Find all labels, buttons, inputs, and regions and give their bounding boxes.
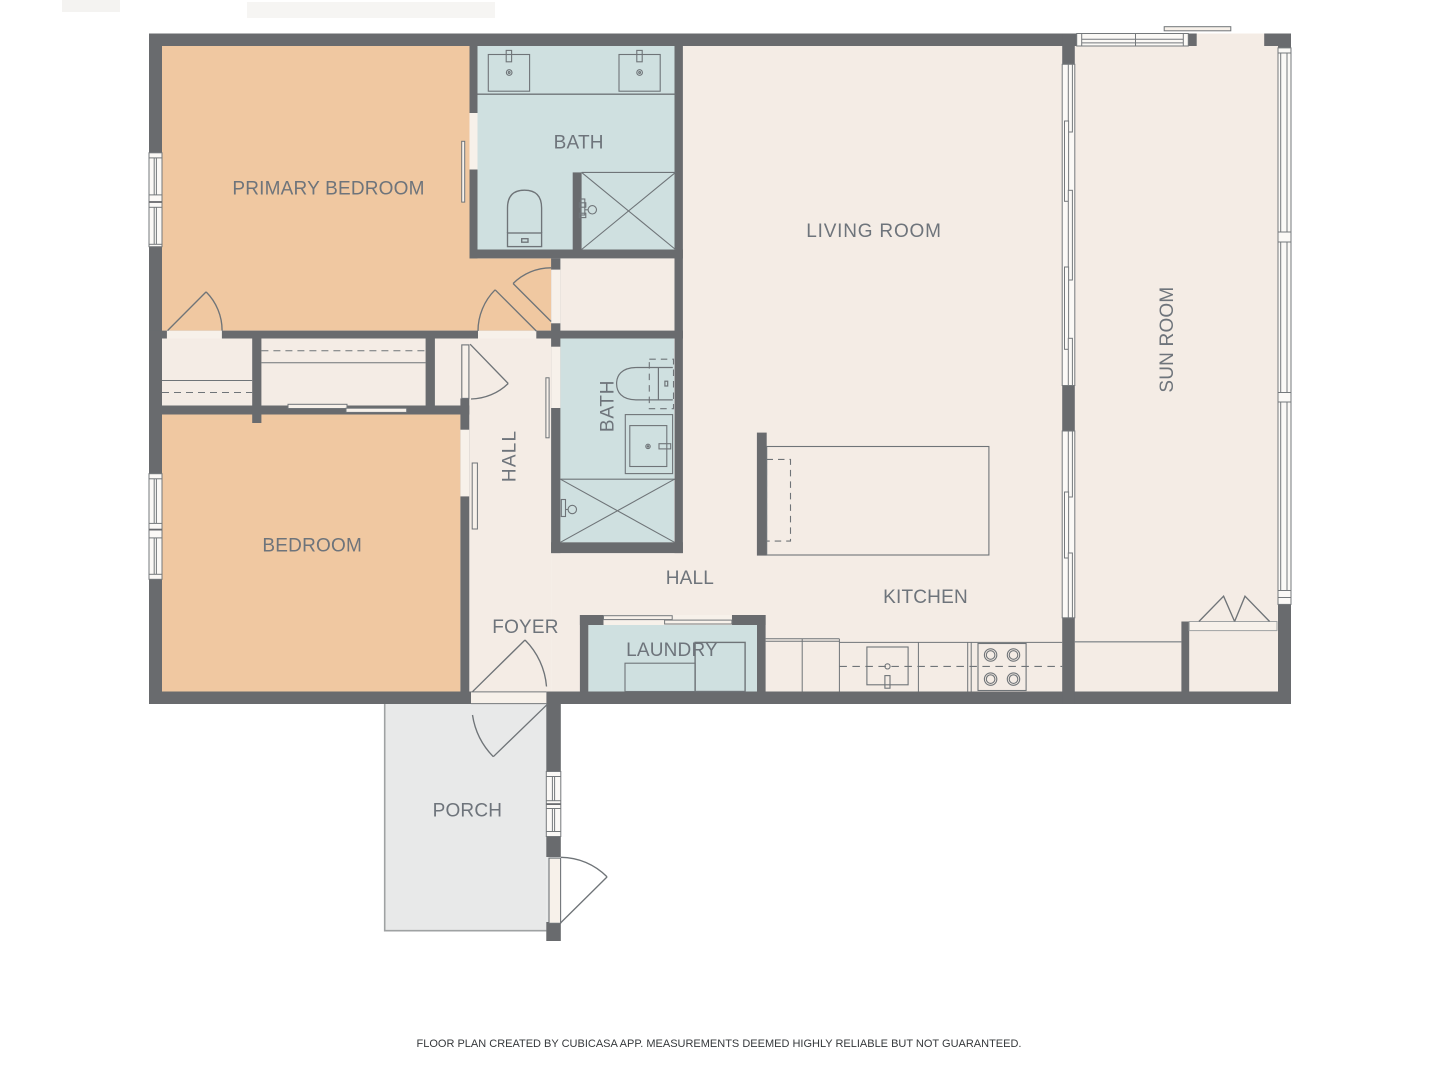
svg-text:LAUNDRY: LAUNDRY [626,640,718,661]
svg-text:BEDROOM: BEDROOM [262,536,362,557]
svg-text:FLOOR PLAN CREATED BY CUBICASA: FLOOR PLAN CREATED BY CUBICASA APP. MEAS… [417,1038,1022,1050]
svg-text:SUN ROOM: SUN ROOM [1157,287,1178,393]
svg-text:BATH: BATH [598,380,619,432]
svg-text:FOYER: FOYER [492,617,558,638]
svg-text:BATH: BATH [554,133,604,154]
svg-text:PORCH: PORCH [433,801,503,822]
svg-text:HALL: HALL [499,430,520,482]
svg-text:KITCHEN: KITCHEN [883,587,968,608]
svg-text:LIVING ROOM: LIVING ROOM [806,221,941,242]
svg-text:PRIMARY BEDROOM: PRIMARY BEDROOM [232,179,424,200]
svg-text:HALL: HALL [666,568,714,589]
